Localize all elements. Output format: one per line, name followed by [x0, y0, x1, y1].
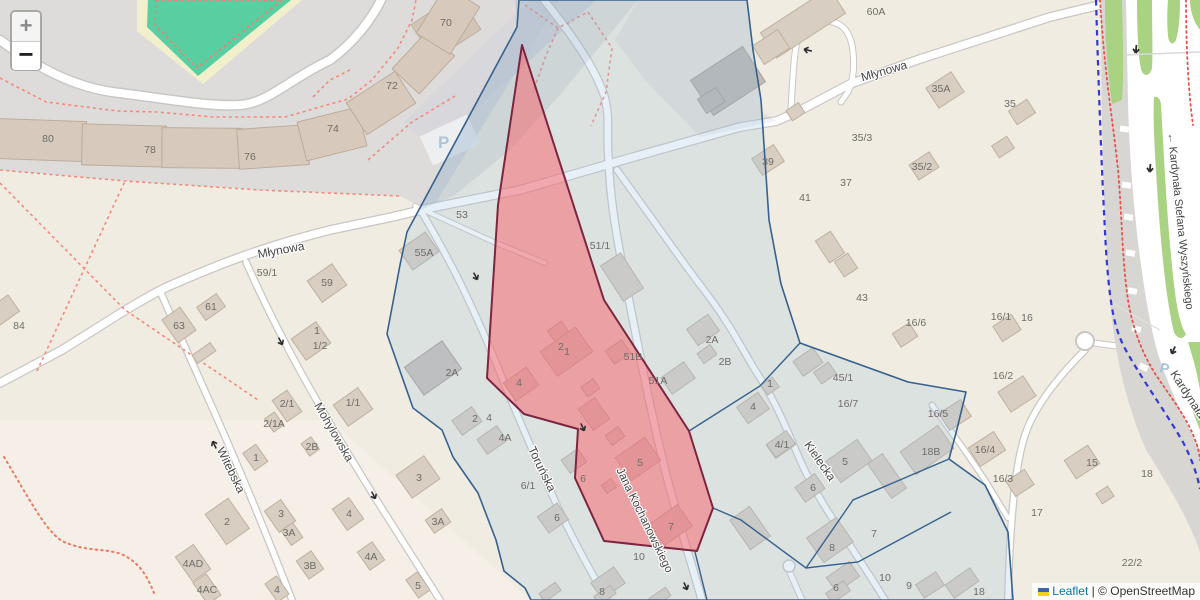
svg-text:37: 37: [840, 177, 852, 189]
svg-text:59/1: 59/1: [257, 267, 278, 279]
svg-text:9: 9: [906, 580, 912, 592]
svg-text:55A: 55A: [415, 247, 434, 259]
svg-text:4A: 4A: [365, 551, 378, 563]
svg-text:18B: 18B: [922, 446, 941, 458]
svg-text:1: 1: [314, 325, 320, 337]
svg-text:16/4: 16/4: [975, 444, 996, 456]
svg-text:72: 72: [386, 80, 398, 92]
svg-text:7: 7: [871, 528, 877, 540]
svg-text:7: 7: [668, 521, 674, 533]
svg-text:1/1: 1/1: [346, 397, 361, 409]
svg-text:84: 84: [13, 320, 25, 332]
svg-text:70: 70: [440, 17, 452, 29]
svg-text:51B: 51B: [624, 351, 643, 363]
svg-text:18: 18: [1141, 468, 1153, 480]
svg-text:3A: 3A: [283, 527, 296, 539]
svg-text:4AD: 4AD: [183, 558, 204, 570]
svg-text:6: 6: [580, 473, 586, 485]
svg-text:5: 5: [842, 456, 848, 468]
svg-text:17: 17: [1031, 507, 1043, 519]
svg-text:3: 3: [416, 472, 422, 484]
svg-text:4: 4: [274, 584, 280, 596]
svg-text:1: 1: [564, 346, 570, 358]
svg-text:39: 39: [762, 156, 774, 168]
svg-text:43: 43: [856, 292, 868, 304]
svg-text:59: 59: [321, 277, 333, 289]
svg-text:35: 35: [1004, 98, 1016, 110]
svg-text:51/1: 51/1: [590, 240, 611, 252]
svg-text:1: 1: [253, 452, 259, 464]
svg-text:80: 80: [42, 133, 54, 145]
svg-text:2/1: 2/1: [280, 398, 295, 410]
svg-text:41: 41: [799, 192, 811, 204]
svg-text:4AC: 4AC: [197, 584, 218, 596]
svg-text:4/1: 4/1: [775, 439, 790, 451]
svg-text:4: 4: [516, 377, 522, 389]
svg-text:16/2: 16/2: [993, 370, 1014, 382]
svg-text:16: 16: [1021, 312, 1033, 324]
svg-text:35/2: 35/2: [912, 161, 933, 173]
svg-text:6: 6: [810, 482, 816, 494]
svg-text:74: 74: [327, 123, 339, 135]
svg-text:2A: 2A: [446, 367, 459, 379]
svg-text:61: 61: [205, 301, 217, 313]
svg-text:4A: 4A: [499, 432, 512, 444]
svg-text:2B: 2B: [306, 441, 319, 453]
svg-text:2: 2: [224, 516, 230, 528]
svg-text:4: 4: [750, 401, 756, 413]
svg-text:6/1: 6/1: [521, 480, 536, 492]
svg-text:15: 15: [1086, 457, 1098, 469]
svg-text:8: 8: [829, 542, 835, 554]
svg-text:45/1: 45/1: [833, 372, 854, 384]
svg-text:60A: 60A: [867, 6, 886, 18]
svg-text:16/6: 16/6: [906, 317, 927, 329]
svg-text:2B: 2B: [719, 356, 732, 368]
svg-text:78: 78: [144, 144, 156, 156]
svg-text:1: 1: [767, 378, 773, 390]
svg-text:16/7: 16/7: [838, 398, 859, 410]
svg-text:76: 76: [244, 151, 256, 163]
svg-text:3A: 3A: [432, 516, 445, 528]
svg-text:2A: 2A: [706, 334, 719, 346]
svg-text:3B: 3B: [304, 560, 317, 572]
svg-text:10: 10: [633, 551, 645, 563]
svg-text:51A: 51A: [649, 375, 668, 387]
svg-text:35/3: 35/3: [852, 132, 873, 144]
svg-text:5: 5: [637, 457, 643, 469]
svg-text:22/2: 22/2: [1122, 557, 1143, 569]
svg-text:4: 4: [486, 412, 492, 424]
svg-text:63: 63: [173, 320, 185, 332]
svg-text:2/1A: 2/1A: [263, 418, 285, 430]
svg-text:8: 8: [599, 586, 605, 598]
svg-text:6: 6: [833, 582, 839, 594]
svg-text:53: 53: [456, 209, 468, 221]
svg-text:3: 3: [278, 508, 284, 520]
svg-text:16/3: 16/3: [993, 473, 1014, 485]
svg-text:18: 18: [973, 586, 985, 598]
svg-text:16/5: 16/5: [928, 408, 949, 420]
svg-text:P: P: [438, 133, 449, 152]
svg-text:5: 5: [415, 580, 421, 592]
svg-text:10: 10: [879, 572, 891, 584]
svg-text:16/1: 16/1: [991, 311, 1012, 323]
svg-text:4: 4: [346, 508, 352, 520]
svg-text:2: 2: [472, 413, 478, 425]
svg-text:1/2: 1/2: [313, 340, 328, 352]
svg-text:6: 6: [554, 512, 560, 524]
svg-text:35A: 35A: [932, 83, 951, 95]
